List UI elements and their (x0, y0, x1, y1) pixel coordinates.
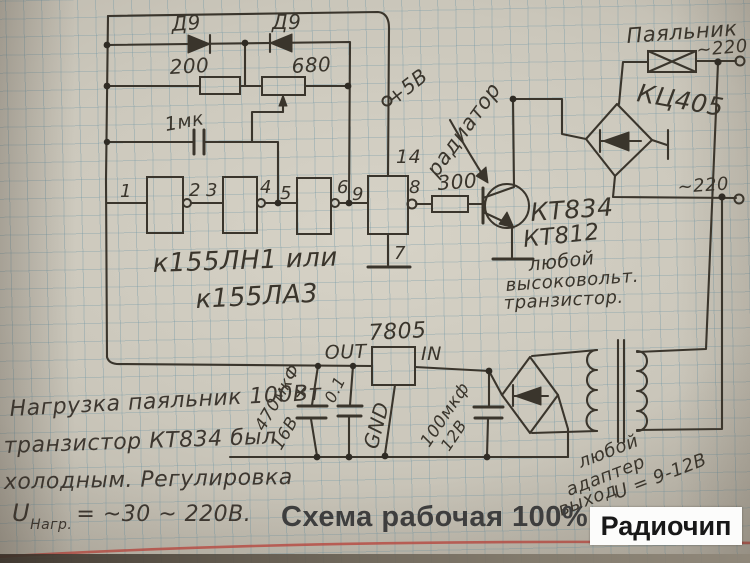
label-plus5v: +5В (382, 64, 432, 110)
gate-2-symbol (223, 177, 257, 233)
transformer-secondary-coil (587, 350, 598, 431)
label-pin1: 1 (120, 181, 132, 202)
label-pin7: 7 (394, 243, 406, 264)
label-diode1: Д9 (170, 10, 202, 36)
schematic-drawing: +5В 14 Д9 Д9 200 680 (0, 0, 750, 563)
gate-3-symbol (297, 178, 331, 234)
label-radiator: радиатор (421, 78, 505, 182)
diode-d9-left-symbol (188, 35, 210, 53)
label-pin4: 4 (260, 177, 272, 198)
label-cap01: 0.1 (321, 373, 350, 406)
radiator-arrowhead (476, 167, 488, 183)
gate-3-inversion-bubble (331, 199, 339, 207)
label-chip-line2: к155ЛА3 (195, 279, 319, 315)
label-7805: 7805 (368, 318, 427, 346)
gate-1-symbol (147, 177, 183, 233)
bridge1-diode (603, 132, 629, 151)
label-bridge1: КЦ405 (635, 78, 726, 122)
label-diode2: Д9 (271, 10, 301, 34)
transistor-stage: 300 радиатор КТ834 КТ812 любой высоковол… (416, 78, 640, 314)
bridge2-diode (515, 387, 541, 405)
note-line3: холодным. Регулировка (3, 465, 293, 495)
photo-of-hand-drawn-schematic: +5В 14 Д9 Д9 200 680 (0, 0, 750, 563)
label-pin3: 3 (206, 180, 218, 201)
gate-2-inversion-bubble (257, 199, 265, 207)
label-gnd: GND (359, 399, 394, 451)
label-r200: 200 (169, 53, 210, 79)
label-pin6: 6 (337, 177, 349, 198)
label-pin14: 14 (396, 146, 421, 168)
label-pin2: 2 (189, 180, 201, 201)
regulator-7805-symbol (372, 347, 415, 385)
pot-wiper-arrow (279, 95, 287, 106)
label-mains-top: ~220 (696, 36, 749, 61)
transformer-primary-coil (637, 351, 647, 431)
page-bottom-edge (0, 554, 750, 563)
transformer-core (618, 340, 624, 442)
diode-d9-right-symbol (270, 34, 292, 52)
note-line2: транзистор КТ834 был (3, 424, 277, 459)
oscillator-section: +5В 14 Д9 Д9 200 680 (106, 10, 432, 357)
label-c1uk: 1мк (163, 107, 206, 136)
label-out: OUT (324, 341, 368, 364)
note-line4-u: U (12, 499, 30, 527)
potentiometer-680-symbol (262, 77, 305, 95)
note-line4-rest: = ~30 ~ 220В. (76, 502, 251, 527)
watermark-badge: Радиочип (590, 507, 742, 545)
label-pin8: 8 (409, 177, 421, 198)
label-pin9: 9 (352, 184, 364, 205)
gate-4-symbol (368, 176, 408, 234)
label-pin5: 5 (280, 183, 292, 204)
resistor-300-symbol (432, 196, 468, 212)
note-line4: UНагр.= ~30 ~ 220В. (12, 499, 251, 533)
label-r680: 680 (291, 52, 332, 78)
mains-section: Паяльник ~220 КЦ405 ~220 (586, 16, 749, 430)
label-chip-line1: к155ЛН1 или (152, 243, 338, 279)
label-in: IN (421, 343, 442, 365)
resistor-200-symbol (200, 77, 240, 94)
status-caption: Схема рабочая 100% (281, 501, 588, 534)
note-line4-sub: Нагр. (30, 517, 72, 533)
